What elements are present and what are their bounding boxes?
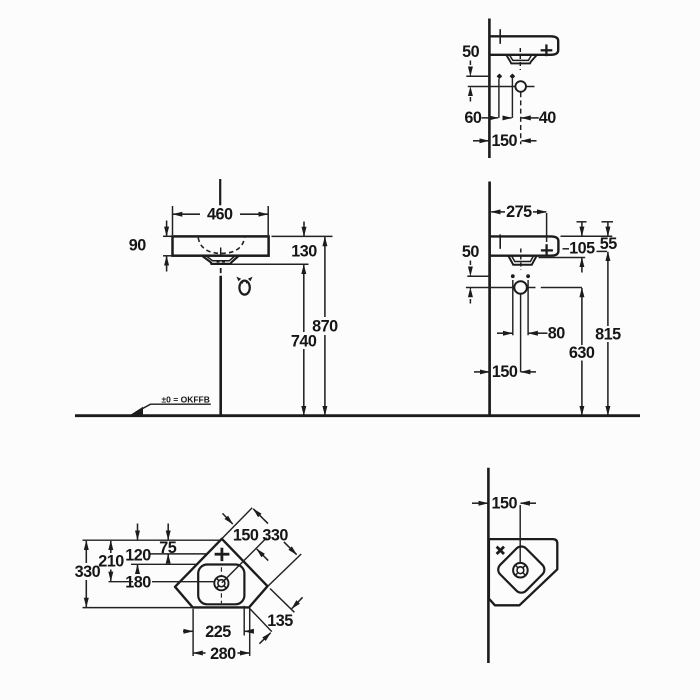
svg-text:120: 120 [125, 546, 151, 564]
svg-text:130: 130 [291, 242, 317, 260]
svg-text:280: 280 [210, 645, 236, 663]
svg-text:180: 180 [125, 574, 151, 592]
svg-text:135: 135 [267, 612, 293, 630]
svg-text:630: 630 [569, 344, 595, 362]
svg-text:60: 60 [464, 109, 482, 127]
svg-text:150: 150 [491, 495, 517, 513]
svg-text:460: 460 [207, 206, 233, 224]
svg-text:40: 40 [539, 109, 557, 127]
svg-text:80: 80 [548, 325, 566, 343]
svg-text:225: 225 [205, 623, 231, 641]
svg-text:210: 210 [98, 553, 124, 571]
svg-text:55: 55 [600, 235, 618, 253]
svg-text:50: 50 [462, 43, 480, 61]
svg-text:870: 870 [312, 318, 338, 336]
svg-text:150: 150 [492, 363, 518, 381]
svg-text:275: 275 [506, 203, 532, 221]
svg-text:150 330: 150 330 [233, 526, 289, 544]
svg-text:50: 50 [462, 243, 480, 261]
svg-text:815: 815 [595, 325, 621, 343]
svg-text:150: 150 [492, 132, 518, 150]
svg-text:105: 105 [569, 239, 595, 257]
svg-text:330: 330 [75, 563, 101, 581]
svg-text:±0 = OKFFB: ±0 = OKFFB [162, 395, 210, 405]
svg-text:90: 90 [129, 237, 147, 255]
